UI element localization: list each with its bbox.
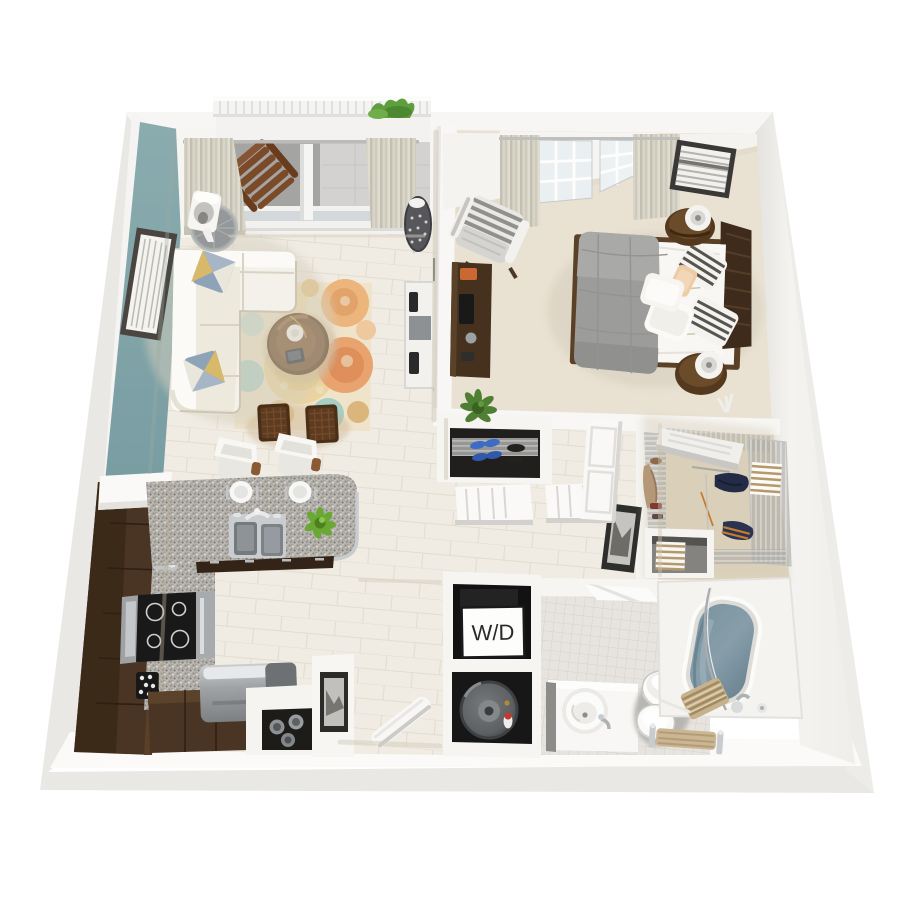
svg-text:W/D: W/D <box>471 620 514 646</box>
